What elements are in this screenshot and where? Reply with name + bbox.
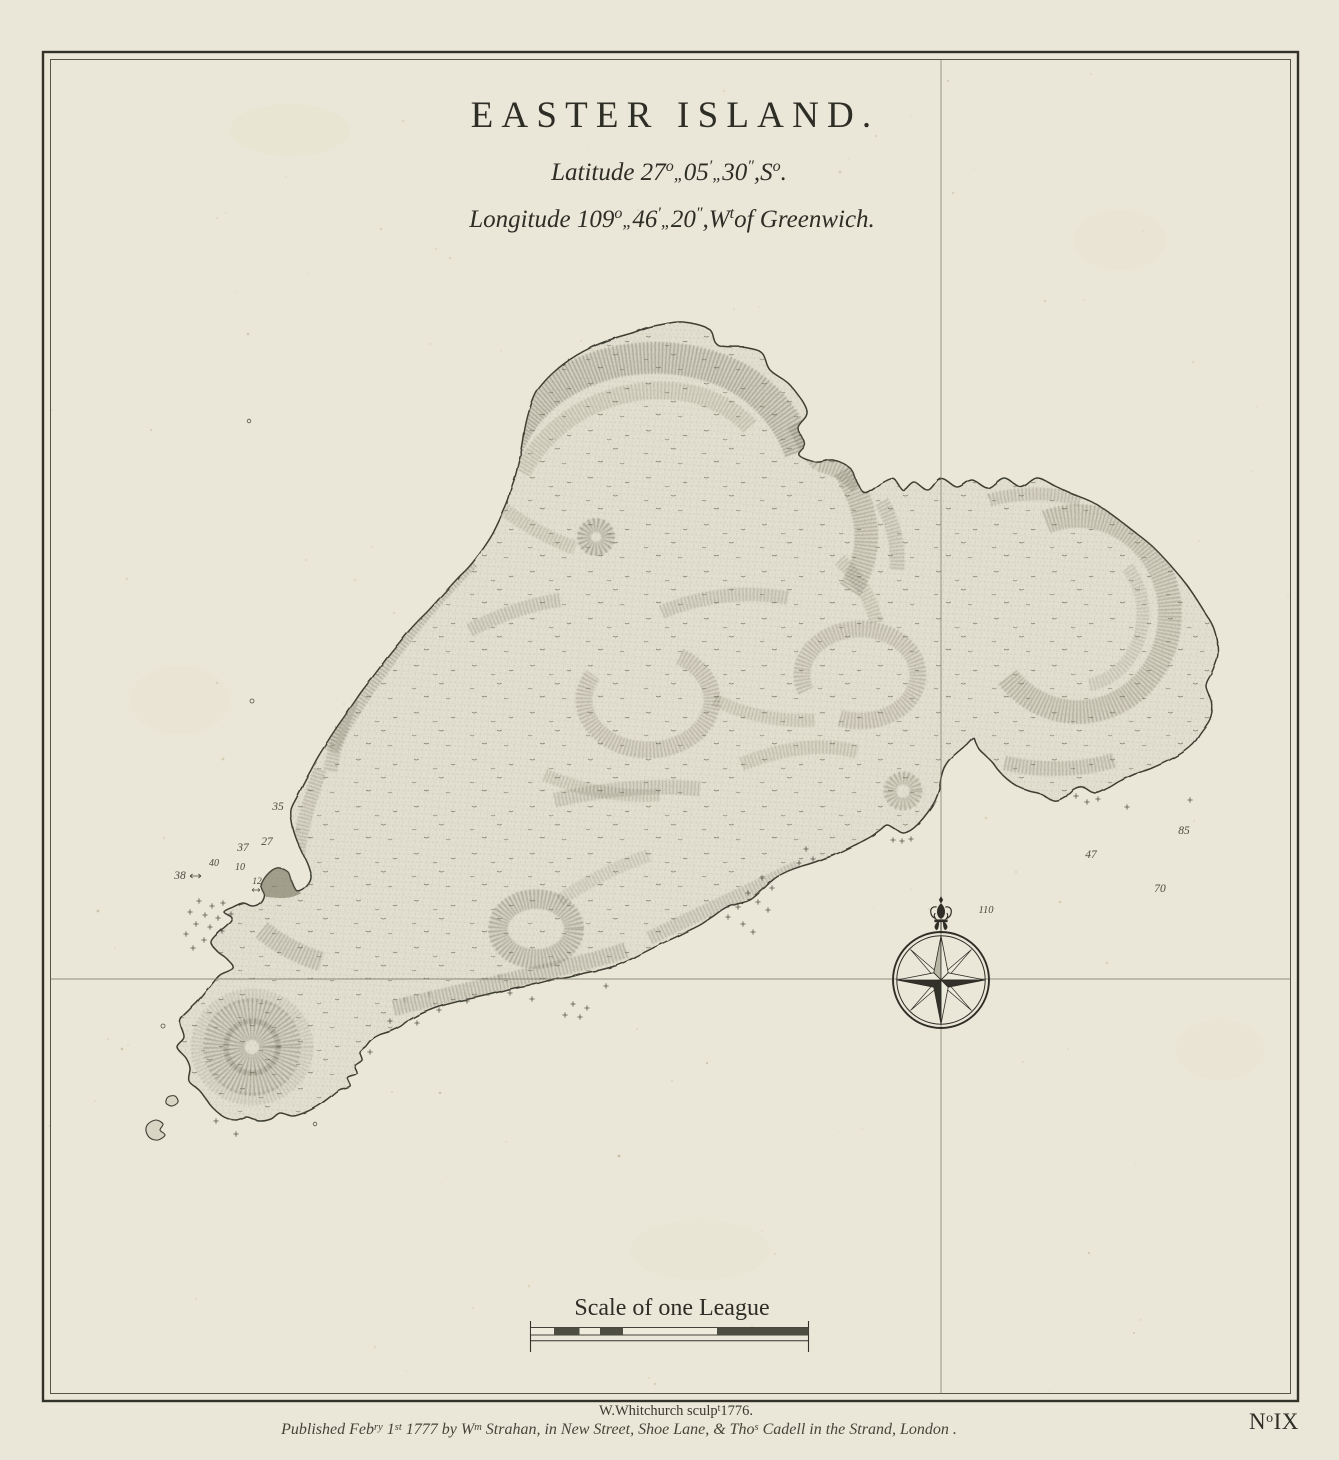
svg-text:35: 35 [271, 801, 284, 813]
svg-text:Longitude 109o„46′„20″,Wtof Gr: Longitude 109o„46′„20″,Wtof Greenwich. [468, 205, 875, 233]
svg-text:Scale of one League: Scale of one League [574, 1295, 769, 1321]
svg-text:70: 70 [1154, 883, 1166, 895]
svg-text:W.Whitchurch sculpt1776.: W.Whitchurch sculpt1776. [599, 1403, 753, 1419]
svg-text:110: 110 [979, 905, 995, 916]
svg-text:37: 37 [236, 842, 250, 854]
svg-text:27: 27 [261, 836, 274, 848]
svg-text:40: 40 [209, 858, 219, 869]
svg-text:47: 47 [1085, 849, 1098, 861]
svg-text:EASTER ISLAND.: EASTER ISLAND. [471, 95, 880, 136]
svg-text:38: 38 [173, 870, 186, 882]
svg-text:NoIX: NoIX [1249, 1409, 1299, 1434]
svg-text:10: 10 [235, 862, 245, 873]
svg-text:12: 12 [252, 877, 262, 887]
svg-text:85: 85 [1178, 825, 1190, 837]
